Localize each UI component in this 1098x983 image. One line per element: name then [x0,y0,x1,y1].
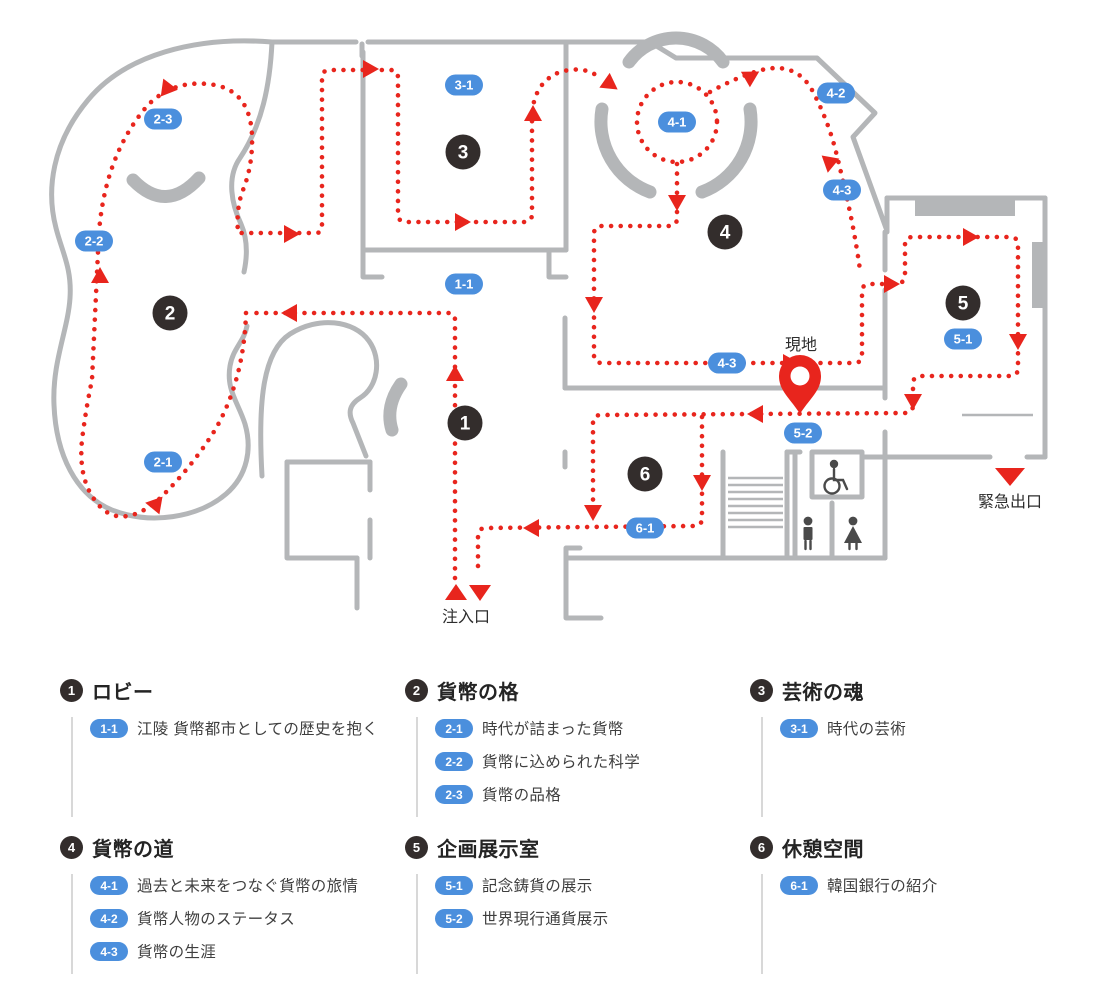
sub-zone-badge: 4-3 [90,942,128,961]
legend-item-list: 5-1記念鋳貨の展示5-2世界現行通貨展示 [416,874,750,974]
legend-item-4-1: 4-1過去と未来をつなぐ貨幣の旅情 [90,874,358,896]
sub-zone-description: 記念鋳貨の展示 [482,874,593,896]
svg-text:1-1: 1-1 [455,277,474,292]
legend-item-1-1: 1-1江陵 貨幣都市としての歴史を抱く [90,717,378,739]
zone-number-badge: 1 [60,679,83,702]
sub-zone-badge: 4-1 [90,876,128,895]
svg-text:3-1: 3-1 [455,78,474,93]
legend-section-header: 3芸術の魂 [750,676,1065,705]
sub-zone-badge: 2-1 [435,719,473,738]
sub-zone-description: 貨幣の品格 [482,783,561,805]
legend-item-list: 4-1過去と未来をつなぐ貨幣の旅情4-2貨幣人物のステータス4-3貨幣の生涯 [71,874,405,974]
map-badge-6-1: 6-1 [626,518,664,539]
svg-text:2-1: 2-1 [154,455,173,470]
emergency-exit-arrow [995,468,1025,486]
map-zone-marker-5: 5 [946,286,981,321]
museum-floor-guide: 現地 注入口 緊急出口 2-32-22-13-11-14-14-24-34-35… [0,0,1098,983]
legend-section-4: 4貨幣の道4-1過去と未来をつなぐ貨幣の旅情4-2貨幣人物のステータス4-3貨幣… [60,833,405,974]
sub-zone-description: 時代が詰まった貨幣 [482,717,624,739]
zone-title: 休憩空間 [782,833,864,862]
legend-section-5: 5企画展示室5-1記念鋳貨の展示5-2世界現行通貨展示 [405,833,750,974]
legend-item-6-1: 6-1韓国銀行の紹介 [780,874,938,896]
svg-text:4-2: 4-2 [827,86,846,101]
legend-item-2-2: 2-2貨幣に込められた科学 [435,750,640,772]
legend-item-list: 2-1時代が詰まった貨幣2-2貨幣に込められた科学2-3貨幣の品格 [416,717,750,817]
legend-item-list: 3-1時代の芸術 [761,717,1065,817]
map-badge-4-3: 4-3 [708,353,746,374]
legend: 1ロビー1-1江陵 貨幣都市としての歴史を抱く2貨幣の格2-1時代が詰まった貨幣… [60,676,1065,974]
map-badge-3-1: 3-1 [445,75,483,96]
legend-item-4-2: 4-2貨幣人物のステータス [90,907,295,929]
sub-zone-badge: 4-2 [90,909,128,928]
current-location-pin [779,355,821,414]
current-location-label: 現地 [785,336,817,354]
legend-section-header: 4貨幣の道 [60,833,405,862]
zone-number-badge: 4 [60,836,83,859]
walls [52,38,1046,618]
sub-zone-description: 貨幣に込められた科学 [482,750,640,772]
zone-title: 貨幣の道 [92,833,174,862]
sub-zone-description: 世界現行通貨展示 [482,907,608,929]
svg-text:5-1: 5-1 [954,332,973,347]
svg-text:1: 1 [460,414,471,435]
zone-title: 貨幣の格 [437,676,519,705]
legend-item-2-3: 2-3貨幣の品格 [435,783,561,805]
sub-zone-badge: 6-1 [780,876,818,895]
sub-zone-badge: 5-2 [435,909,473,928]
emergency-exit-label: 緊急出口 [978,493,1042,511]
route-path [81,68,1018,578]
sub-zone-description: 江陵 貨幣都市としての歴史を抱く [137,717,378,739]
map-zone-marker-1: 1 [448,406,483,441]
legend-item-list: 6-1韓国銀行の紹介 [761,874,1065,974]
svg-text:5: 5 [958,294,969,315]
male-restroom-icon [804,517,813,549]
sub-zone-badge: 2-2 [435,752,473,771]
svg-text:4-3: 4-3 [833,183,852,198]
zone-number-badge: 5 [405,836,428,859]
legend-section-header: 1ロビー [60,676,405,705]
map-badge-2-1: 2-1 [144,452,182,473]
legend-section-header: 6休憩空間 [750,833,1065,862]
zone-title: 芸術の魂 [782,676,864,705]
legend-section-1: 1ロビー1-1江陵 貨幣都市としての歴史を抱く [60,676,405,817]
svg-text:2-2: 2-2 [85,234,104,249]
legend-item-4-3: 4-3貨幣の生涯 [90,940,216,962]
map-zone-marker-6: 6 [628,457,663,492]
sub-zone-badge: 1-1 [90,719,128,738]
legend-item-3-1: 3-1時代の芸術 [780,717,906,739]
svg-text:6-1: 6-1 [636,521,655,536]
svg-text:5-2: 5-2 [794,426,813,441]
sub-zone-badge: 3-1 [780,719,818,738]
floor-plan-map: 現地 注入口 緊急出口 2-32-22-13-11-14-14-24-34-35… [0,0,1098,660]
legend-section-header: 5企画展示室 [405,833,750,862]
legend-section-2: 2貨幣の格2-1時代が詰まった貨幣2-2貨幣に込められた科学2-3貨幣の品格 [405,676,750,817]
legend-section-3: 3芸術の魂3-1時代の芸術 [750,676,1065,817]
stairs [728,478,783,527]
zone-number-badge: 2 [405,679,428,702]
map-badge-5-1: 5-1 [944,329,982,350]
svg-text:4-1: 4-1 [668,115,687,130]
svg-text:2-3: 2-3 [154,112,173,127]
sub-zone-description: 時代の芸術 [827,717,906,739]
sub-zone-badge: 5-1 [435,876,473,895]
map-zone-marker-4: 4 [708,215,743,250]
zone-number-badge: 3 [750,679,773,702]
map-badge-5-2: 5-2 [784,423,822,444]
legend-section-6: 6休憩空間6-1韓国銀行の紹介 [750,833,1065,974]
map-zone-marker-3: 3 [446,135,481,170]
sub-zone-description: 過去と未来をつなぐ貨幣の旅情 [137,874,358,896]
map-badge-1-1: 1-1 [445,274,483,295]
svg-text:4: 4 [720,223,731,244]
svg-text:2: 2 [165,304,176,325]
female-restroom-icon [844,517,862,549]
map-badge-4-2: 4-2 [817,83,855,104]
legend-item-5-1: 5-1記念鋳貨の展示 [435,874,593,896]
map-badge-2-2: 2-2 [75,231,113,252]
wheelchair-icon [825,460,848,494]
legend-item-5-2: 5-2世界現行通貨展示 [435,907,608,929]
svg-text:3: 3 [458,143,469,164]
legend-section-header: 2貨幣の格 [405,676,750,705]
sub-zone-description: 貨幣の生涯 [137,940,216,962]
entrance-arrows [445,584,491,601]
legend-item-list: 1-1江陵 貨幣都市としての歴史を抱く [71,717,405,817]
sub-zone-badge: 2-3 [435,785,473,804]
zone-title: ロビー [92,676,154,705]
map-badge-4-3: 4-3 [823,180,861,201]
legend-item-2-1: 2-1時代が詰まった貨幣 [435,717,624,739]
entrance-label: 注入口 [442,608,490,626]
zone-title: 企画展示室 [437,833,540,862]
map-badge-4-1: 4-1 [658,112,696,133]
sub-zone-description: 貨幣人物のステータス [137,907,295,929]
sub-zone-description: 韓国銀行の紹介 [827,874,938,896]
svg-text:4-3: 4-3 [718,356,737,371]
map-markers: 2-32-22-13-11-14-14-24-34-35-15-26-11234… [75,75,982,539]
map-badge-2-3: 2-3 [144,109,182,130]
map-zone-marker-2: 2 [153,296,188,331]
svg-text:6: 6 [640,465,651,486]
zone-number-badge: 6 [750,836,773,859]
